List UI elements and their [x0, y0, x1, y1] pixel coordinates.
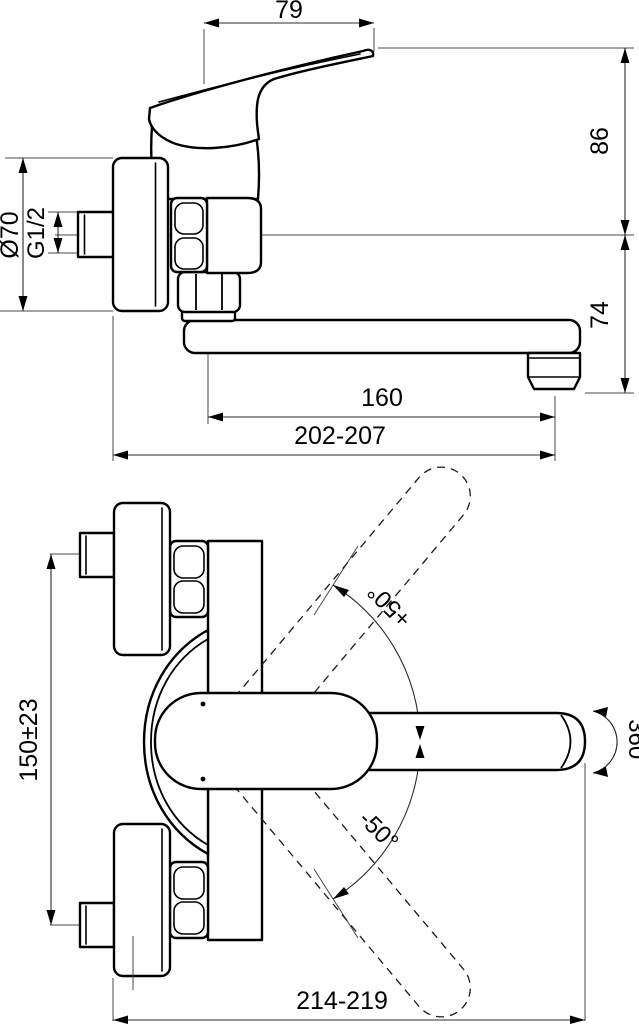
- lower-inlet-stub: [80, 903, 114, 947]
- technical-drawing: 79 86 74 Ø70 G1/2 160 202-207: [0, 0, 639, 1024]
- side-elevation-view: 79 86 74 Ø70 G1/2 160 202-207: [0, 0, 634, 461]
- body-block: [207, 198, 261, 273]
- spout-arm: [184, 320, 580, 353]
- drawing-page: 79 86 74 Ø70 G1/2 160 202-207: [0, 0, 639, 1024]
- inlet-stub: [78, 212, 114, 257]
- faucet-side-geometry: [78, 50, 580, 389]
- dim-swivel-minus-label: -50°: [353, 805, 403, 855]
- dim-wall-to-outlet-label: 202-207: [294, 422, 386, 450]
- plan-view: 150±23 +50° -50° 360° 214-219: [15, 455, 639, 1024]
- rotation-arc: [593, 711, 617, 773]
- inlet-union-nut: [171, 198, 207, 272]
- upper-connection: [80, 503, 208, 655]
- dim-swivel-plus-label: +50°: [362, 578, 417, 633]
- dim-spout-reach-label: 160: [361, 384, 403, 412]
- lever-handle: [149, 50, 373, 148]
- lower-connection: [80, 824, 208, 990]
- upper-inlet-stub: [80, 533, 114, 577]
- faucet-plan-geometry: [80, 455, 585, 1024]
- handle-plan: [155, 693, 377, 789]
- handle-screw-dot: [201, 777, 206, 782]
- handle-screw-dot: [201, 702, 206, 707]
- dim-lever-width-label: 79: [275, 0, 303, 24]
- aerator: [528, 353, 580, 389]
- upper-wall-flange: [114, 503, 170, 655]
- dim-axis-to-outlet-label: 74: [586, 301, 614, 329]
- lower-union-nut: [170, 862, 208, 938]
- dim-height-above-axis-label: 86: [586, 127, 614, 155]
- dim-flange-diameter-label: Ø70: [0, 211, 24, 258]
- dim-overall-reach-label: 214-219: [296, 987, 388, 1015]
- dim-connection-spacing-label: 150±23: [15, 698, 43, 781]
- lower-wall-flange: [114, 824, 170, 976]
- upper-union-nut: [170, 541, 208, 617]
- wall-flange: [113, 158, 168, 311]
- dim-thread-size-label: G1/2: [23, 207, 50, 259]
- spout-union-nut: [178, 272, 240, 312]
- dim-rotation-label: 360°: [623, 719, 639, 769]
